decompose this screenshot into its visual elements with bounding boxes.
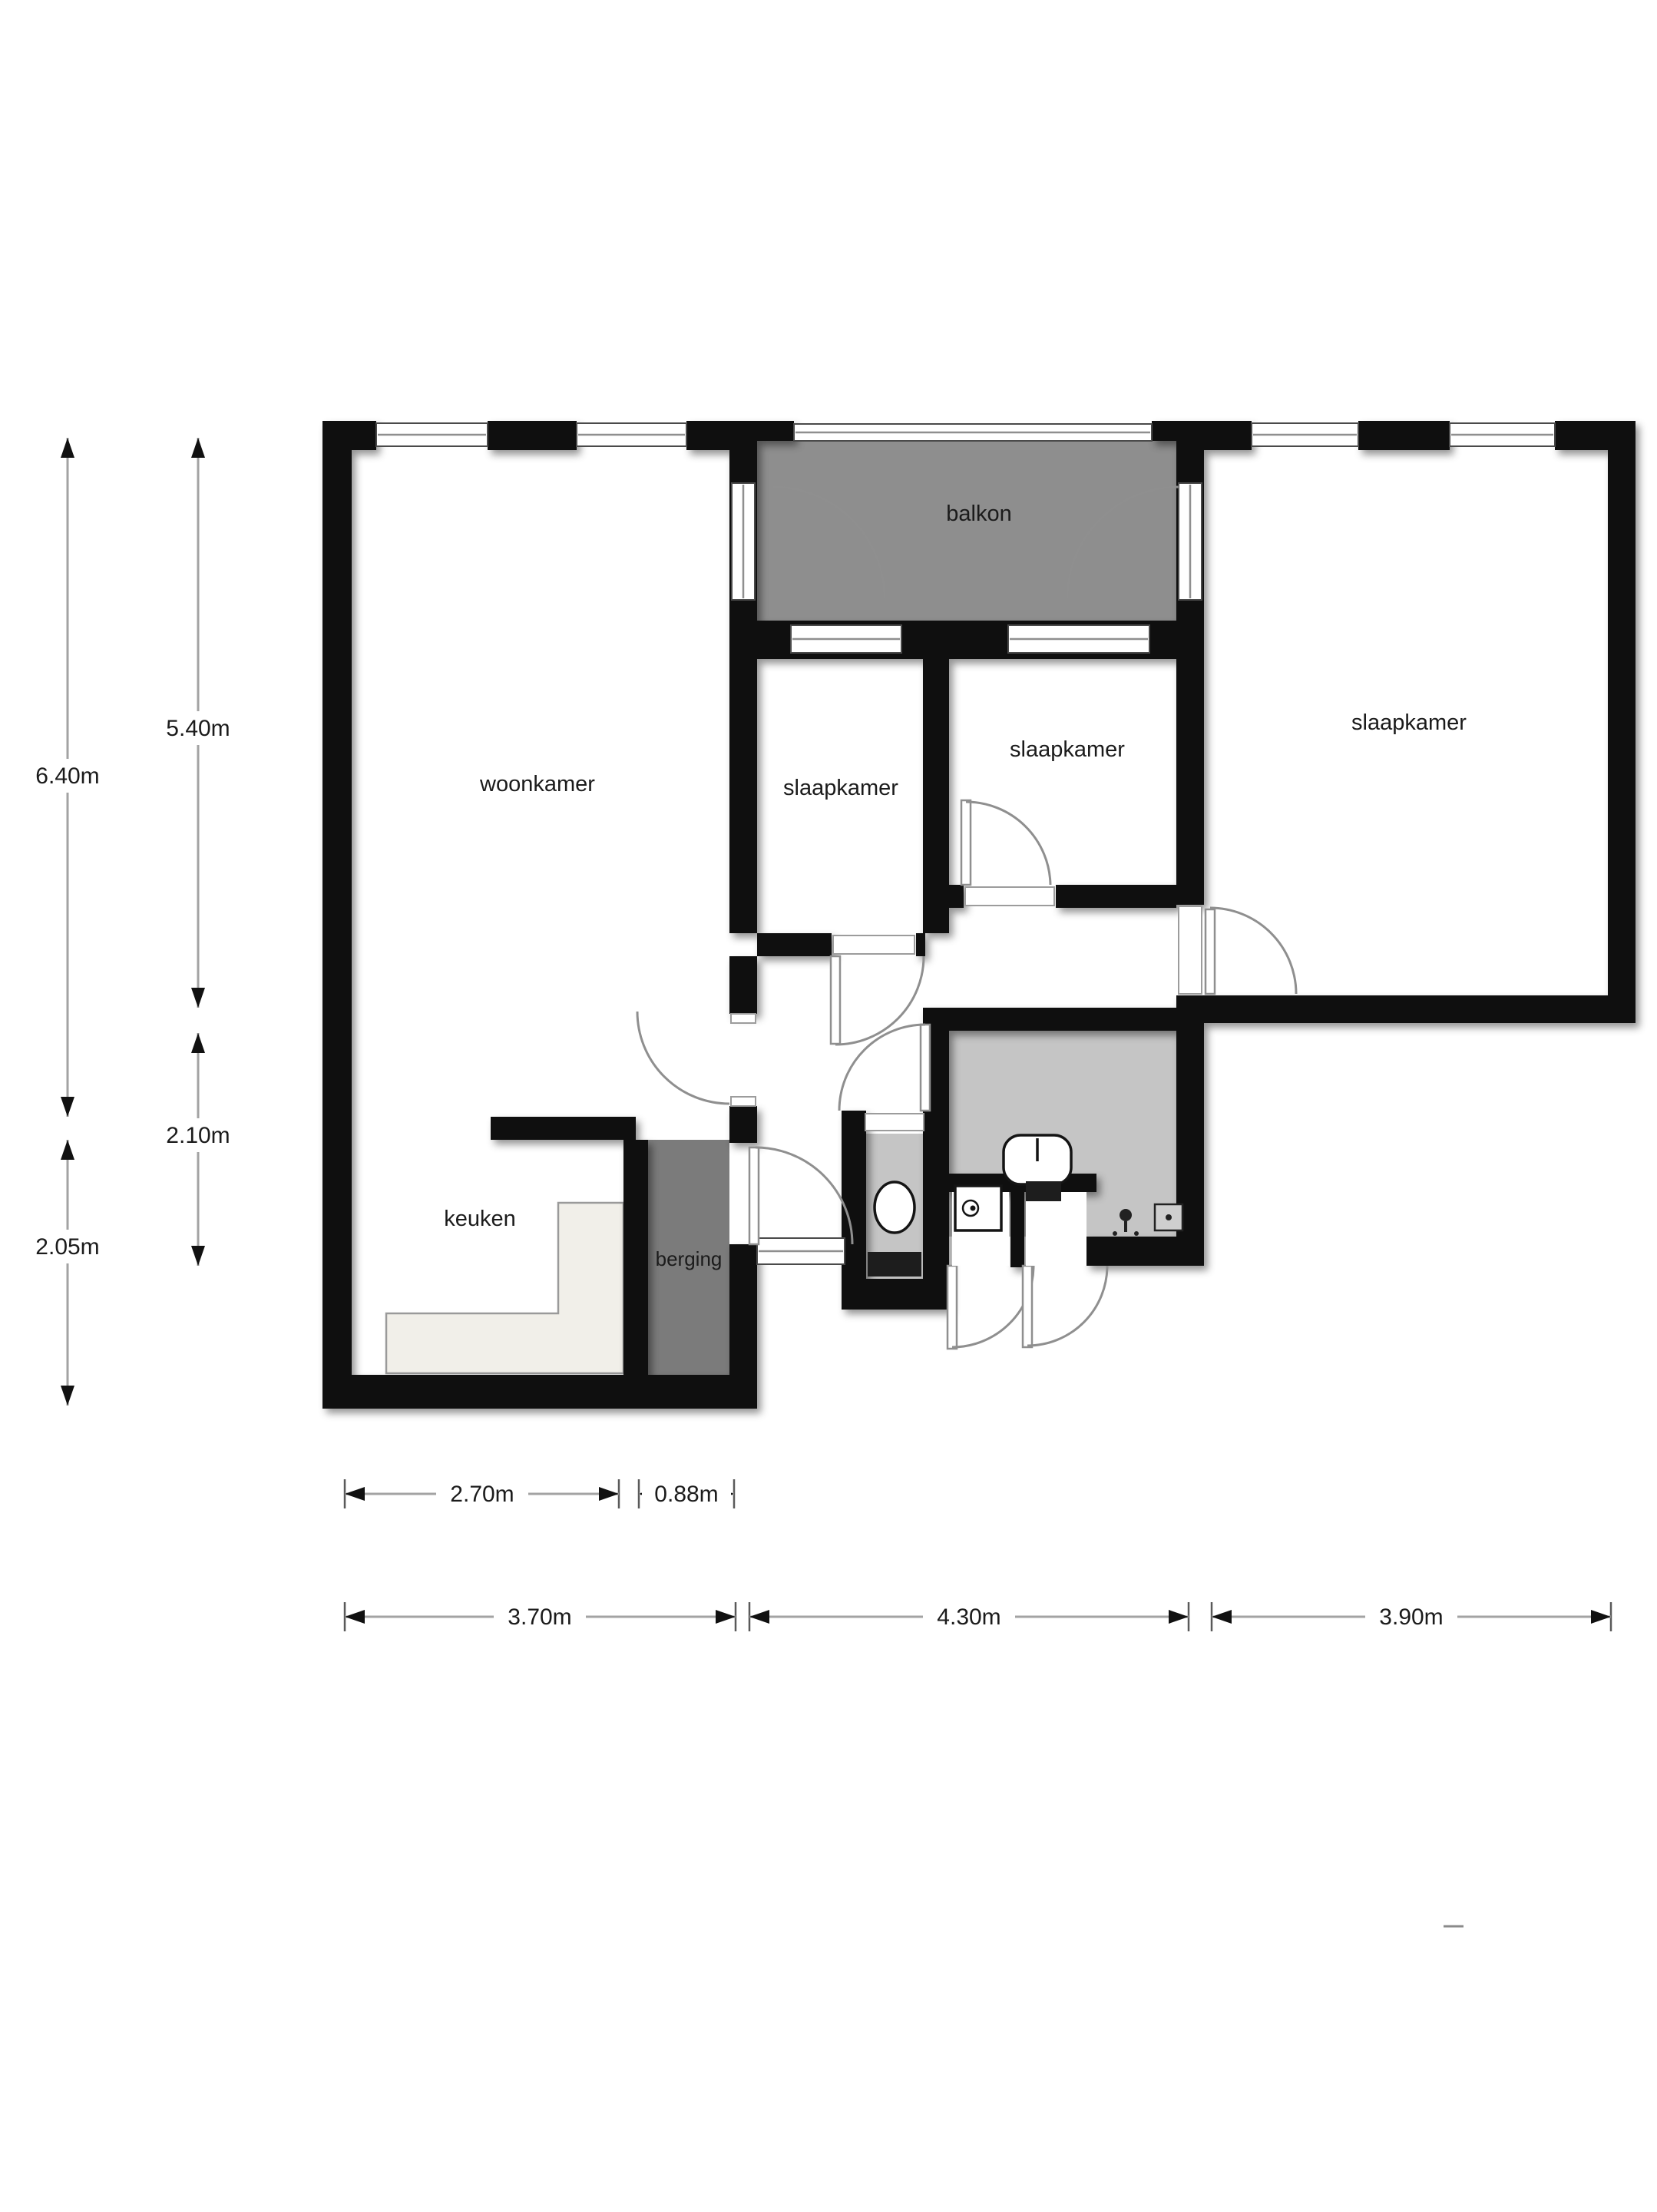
wall (322, 421, 352, 1409)
dim-label: 5.40m (166, 716, 230, 741)
dim-arrow (61, 1386, 74, 1406)
wall (1358, 421, 1450, 450)
window (577, 423, 686, 446)
bath-niche (1026, 1192, 1086, 1266)
window (1252, 423, 1358, 446)
wall (916, 933, 925, 956)
door-arc (1210, 908, 1296, 994)
door-leaf (1206, 909, 1215, 994)
dim-arrow (1212, 1610, 1232, 1624)
wall (1152, 421, 1176, 441)
dim-arrow (599, 1487, 619, 1501)
room-label-kitchen: keuken (444, 1207, 516, 1231)
wall (729, 1244, 757, 1409)
wall (757, 933, 832, 956)
wall (1555, 421, 1636, 450)
room-label-balcony: balkon (946, 502, 1011, 526)
door-sill (865, 1114, 924, 1131)
room-label-storage: berging (656, 1247, 723, 1270)
wall (322, 1375, 757, 1409)
wall (1608, 450, 1636, 1023)
dim-arrow (716, 1610, 736, 1624)
door-leaf (831, 956, 840, 1044)
dim-arrow (61, 438, 74, 458)
wall (623, 1140, 648, 1375)
door-leaf (749, 1147, 759, 1244)
wall (757, 421, 794, 441)
door-leaf (948, 1266, 957, 1349)
wall (729, 956, 757, 1014)
door-arc (966, 802, 1050, 885)
window (1450, 423, 1555, 446)
window (376, 423, 488, 446)
wall (488, 421, 577, 450)
door-sill (731, 1097, 756, 1106)
dim-arrow (749, 1610, 769, 1624)
dim-label: 3.70m (508, 1604, 571, 1630)
door-arc (1027, 1266, 1107, 1346)
door-arc (835, 956, 924, 1045)
wall (1086, 1237, 1176, 1266)
balcony-floor (757, 435, 1176, 630)
wall (1010, 1174, 1024, 1267)
window (1008, 625, 1149, 653)
door-sill (1179, 906, 1202, 994)
dim-label: 2.70m (450, 1482, 514, 1507)
wall (923, 1008, 1204, 1031)
dim-label: 2.05m (35, 1234, 99, 1260)
wall (1176, 995, 1636, 1023)
dim-arrow (191, 438, 205, 458)
room-label-living: woonkamer (479, 772, 595, 796)
door-leaf (1023, 1266, 1032, 1347)
wall (1056, 885, 1176, 908)
dim-arrow (61, 1140, 74, 1160)
dim-arrow (1169, 1610, 1189, 1624)
dim-arrow (345, 1610, 365, 1624)
wall (1176, 421, 1252, 450)
drain-icon (1155, 1204, 1182, 1230)
room-label-bedroom-mid: slaapkamer (1010, 737, 1125, 762)
door-arc (952, 1266, 1034, 1347)
balcony-door-frame (1179, 483, 1202, 600)
dim-arrow (61, 1097, 74, 1117)
wall (729, 1106, 757, 1143)
dim-arrow (191, 1246, 205, 1266)
wall (491, 1117, 636, 1140)
dim-arrow (1591, 1610, 1611, 1624)
wall (925, 1111, 949, 1134)
wall (923, 659, 949, 933)
wall (949, 885, 964, 908)
door-arc (637, 1012, 729, 1104)
dim-label: 3.90m (1379, 1604, 1443, 1630)
door-sill (833, 935, 914, 954)
door-sill (965, 887, 1054, 906)
room-label-bedroom-left: slaapkamer (783, 776, 898, 800)
washer-icon (955, 1186, 1001, 1230)
dim-label: 6.40m (35, 763, 99, 789)
dim-arrow (191, 988, 205, 1008)
door-arc (756, 1147, 852, 1244)
wall (842, 1279, 949, 1310)
window (791, 625, 901, 653)
dim-label: 4.30m (937, 1604, 1000, 1630)
door-arc (839, 1025, 925, 1111)
dim-label: 0.88m (654, 1482, 718, 1507)
door-sill (731, 1014, 756, 1023)
door-leaf (921, 1025, 930, 1111)
door-leaf (961, 800, 971, 885)
dim-arrow (191, 1033, 205, 1053)
room-label-bedroom-right: slaapkamer (1351, 710, 1467, 735)
dim-arrow (345, 1487, 365, 1501)
balcony-door-frame (732, 483, 755, 600)
dim-label: 2.10m (166, 1123, 230, 1148)
entrance-opening (757, 1238, 845, 1264)
floor-plan: woonkamer slaapkamer slaapkamer slaapkam… (0, 0, 1657, 2212)
balcony-railing (794, 424, 1152, 441)
